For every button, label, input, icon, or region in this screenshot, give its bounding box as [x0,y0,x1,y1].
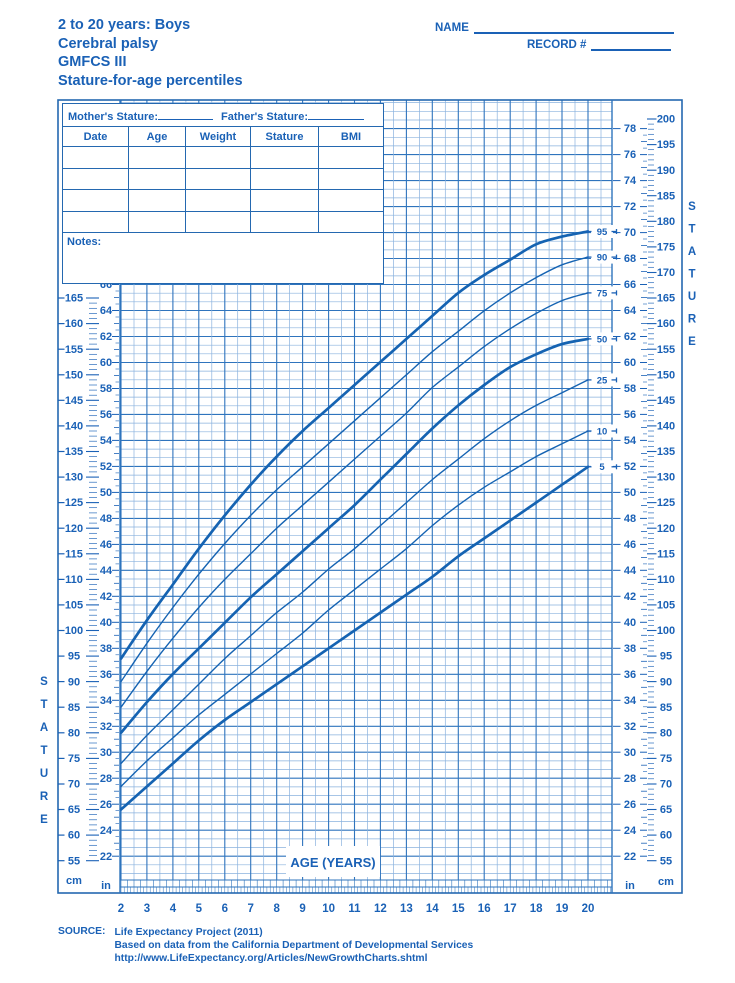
svg-text:90: 90 [597,253,608,264]
svg-text:46: 46 [100,539,112,551]
svg-text:120: 120 [657,523,675,535]
svg-text:75: 75 [597,288,608,299]
mother-stature-label: Mother's Stature: [68,111,158,123]
svg-text:4: 4 [170,903,177,915]
svg-text:140: 140 [657,421,675,433]
subtitle-gmfcs-level: GMFCS III [58,53,243,72]
svg-text:8: 8 [273,903,280,915]
svg-text:55: 55 [68,855,80,867]
record-field: RECORD # [527,37,671,51]
entry-cell[interactable] [319,190,384,212]
svg-text:56: 56 [100,409,112,421]
svg-text:32: 32 [100,721,112,733]
svg-text:36: 36 [100,669,112,681]
svg-text:62: 62 [100,331,112,343]
svg-text:28: 28 [624,773,636,785]
svg-text:175: 175 [657,242,675,254]
svg-text:34: 34 [100,695,113,707]
svg-text:28: 28 [100,773,112,785]
svg-text:2: 2 [118,903,124,915]
svg-text:145: 145 [657,395,675,407]
svg-text:36: 36 [624,669,636,681]
svg-text:U: U [40,768,48,780]
svg-text:105: 105 [657,600,675,612]
svg-text:135: 135 [657,446,675,458]
svg-text:100: 100 [65,625,83,637]
svg-text:22: 22 [100,851,112,863]
svg-text:64: 64 [624,305,637,317]
entry-cell[interactable] [186,211,251,233]
svg-text:75: 75 [660,753,672,765]
svg-text:72: 72 [624,201,636,213]
svg-text:65: 65 [660,804,672,816]
y-axis-left: 1651601551501451401351301251201151101051… [58,279,119,892]
svg-text:24: 24 [100,825,113,837]
svg-text:115: 115 [657,548,675,560]
svg-text:22: 22 [624,851,636,863]
svg-text:165: 165 [65,293,83,305]
svg-text:130: 130 [657,472,675,484]
svg-text:120: 120 [65,523,83,535]
svg-text:55: 55 [660,855,672,867]
svg-text:85: 85 [660,702,672,714]
svg-text:80: 80 [68,727,80,739]
column-header-weight: Weight [186,127,251,147]
entry-cell[interactable] [63,190,129,212]
svg-text:32: 32 [624,721,636,733]
svg-text:76: 76 [624,149,636,161]
entry-cell[interactable] [63,211,129,233]
column-header-date: Date [63,127,129,147]
notes-label: Notes: [67,236,101,248]
svg-text:20: 20 [582,903,595,915]
svg-text:125: 125 [65,497,83,509]
svg-text:25: 25 [597,375,608,386]
svg-text:16: 16 [478,903,491,915]
svg-text:30: 30 [624,747,636,759]
svg-text:95: 95 [68,651,80,663]
svg-text:cm: cm [658,876,674,888]
svg-text:12: 12 [374,903,387,915]
father-stature-input-line[interactable] [308,110,364,120]
svg-text:14: 14 [426,903,439,915]
svg-text:110: 110 [65,574,83,586]
svg-text:70: 70 [624,227,636,239]
svg-text:200: 200 [657,114,675,126]
subtitle-condition: Cerebral palsy [58,35,243,54]
svg-text:60: 60 [624,357,636,369]
svg-text:15: 15 [452,903,465,915]
svg-text:165: 165 [657,293,675,305]
svg-text:S: S [688,201,696,213]
svg-text:46: 46 [624,539,636,551]
svg-text:195: 195 [657,139,675,151]
svg-text:155: 155 [657,344,675,356]
title-block: 2 to 20 years: Boys Cerebral palsy GMFCS… [58,16,243,90]
entry-cell[interactable] [251,190,319,212]
svg-text:60: 60 [68,830,80,842]
column-header-bmi: BMI [319,127,384,147]
source-label: SOURCE: [58,926,105,965]
svg-text:42: 42 [100,591,112,603]
svg-text:S: S [40,676,48,688]
svg-text:AGE (YEARS): AGE (YEARS) [290,855,375,870]
svg-text:cm: cm [66,875,82,887]
svg-text:17: 17 [504,903,517,915]
svg-text:T: T [40,745,47,757]
svg-text:T: T [688,269,695,281]
svg-text:13: 13 [400,903,413,915]
svg-text:50: 50 [597,334,608,345]
svg-text:38: 38 [624,643,636,655]
entry-cell[interactable] [186,147,251,169]
svg-text:66: 66 [624,279,636,291]
svg-text:7: 7 [247,903,253,915]
page-title: 2 to 20 years: Boys [58,16,243,35]
svg-text:105: 105 [65,600,83,612]
svg-text:70: 70 [660,779,672,791]
growth-chart-page: 1651601551501451401351301251201151101051… [0,0,735,983]
svg-text:44: 44 [100,565,113,577]
column-header-stature: Stature [251,127,319,147]
svg-text:90: 90 [660,676,672,688]
svg-text:44: 44 [624,565,637,577]
svg-text:26: 26 [100,799,112,811]
svg-text:50: 50 [624,487,636,499]
x-axis: 234567891011121314151617181920 [118,903,595,915]
parent-stature-row: Mother's Stature:Father's Stature: [63,104,384,127]
entry-cell[interactable] [319,211,384,233]
svg-text:58: 58 [100,383,112,395]
svg-text:T: T [688,224,695,236]
svg-text:11: 11 [348,903,361,915]
entry-cell[interactable] [129,168,186,190]
name-input-line[interactable] [474,20,674,34]
svg-text:10: 10 [597,426,608,437]
svg-text:9: 9 [299,903,305,915]
svg-text:5: 5 [599,462,605,473]
y-axis-right: 7876747270686664626058565452504846444240… [613,114,675,892]
entry-table-header-row: DateAgeWeightStatureBMI [63,127,384,147]
svg-text:52: 52 [624,461,636,473]
svg-text:190: 190 [657,165,675,177]
svg-text:155: 155 [65,344,83,356]
svg-text:52: 52 [100,461,112,473]
svg-text:10: 10 [322,903,335,915]
source-line-2: Based on data from the California Depart… [114,939,473,952]
svg-text:30: 30 [100,747,112,759]
svg-text:48: 48 [624,513,636,525]
source-url: http://www.LifeExpectancy.org/Articles/N… [114,952,473,965]
entry-table-row [63,168,384,190]
svg-text:40: 40 [624,617,636,629]
entry-cell[interactable] [319,168,384,190]
source-block: SOURCE: Life Expectancy Project (2011) B… [58,926,473,965]
entry-cell[interactable] [63,168,129,190]
entry-cell[interactable] [251,211,319,233]
svg-text:60: 60 [660,830,672,842]
svg-text:185: 185 [657,190,675,202]
svg-text:in: in [101,880,111,892]
entry-cell[interactable] [129,190,186,212]
svg-text:115: 115 [65,548,83,560]
notes-area[interactable]: Notes: [63,233,384,284]
svg-text:110: 110 [657,574,675,586]
svg-text:62: 62 [624,331,636,343]
source-line-1: Life Expectancy Project (2011) [114,926,473,939]
svg-text:70: 70 [68,779,80,791]
svg-text:in: in [625,880,635,892]
column-header-age: Age [129,127,186,147]
data-entry-table: Mother's Stature:Father's Stature: DateA… [62,103,384,284]
entry-cell[interactable] [186,190,251,212]
subtitle-measure: Stature-for-age percentiles [58,72,243,91]
svg-text:85: 85 [68,702,80,714]
svg-text:56: 56 [624,409,636,421]
svg-text:24: 24 [624,825,637,837]
record-input-line[interactable] [591,37,671,51]
entry-table-row [63,147,384,169]
entry-table-row [63,211,384,233]
entry-cell[interactable] [319,147,384,169]
svg-text:54: 54 [100,435,113,447]
svg-text:19: 19 [556,903,569,915]
entry-table-row [63,190,384,212]
svg-text:95: 95 [597,227,608,238]
svg-text:150: 150 [65,369,83,381]
svg-text:95: 95 [660,651,672,663]
name-field: NAME [435,20,674,34]
svg-text:100: 100 [657,625,675,637]
svg-text:U: U [688,291,696,303]
name-label: NAME [435,22,469,34]
father-stature-label: Father's Stature: [221,111,308,123]
svg-text:150: 150 [657,369,675,381]
svg-text:42: 42 [624,591,636,603]
svg-text:18: 18 [530,903,543,915]
svg-text:60: 60 [100,357,112,369]
svg-text:68: 68 [624,253,636,265]
svg-text:40: 40 [100,617,112,629]
record-label: RECORD # [527,39,586,51]
svg-text:58: 58 [624,383,636,395]
svg-text:R: R [40,791,49,803]
svg-text:5: 5 [196,903,203,915]
entry-cell[interactable] [129,211,186,233]
svg-text:145: 145 [65,395,83,407]
svg-text:26: 26 [624,799,636,811]
svg-text:A: A [40,722,48,734]
svg-text:90: 90 [68,676,80,688]
svg-text:140: 140 [65,421,83,433]
svg-text:75: 75 [68,753,80,765]
svg-text:34: 34 [624,695,637,707]
mother-stature-input-line[interactable] [158,110,213,120]
entry-cell[interactable] [129,147,186,169]
entry-cell[interactable] [63,147,129,169]
entry-cell[interactable] [251,168,319,190]
svg-text:130: 130 [65,472,83,484]
stature-axis-title-left: STATURE [40,676,49,826]
age-axis-title: AGE (YEARS) [286,846,380,877]
entry-cell[interactable] [251,147,319,169]
svg-text:65: 65 [68,804,80,816]
svg-text:T: T [40,699,47,711]
svg-text:E: E [40,814,48,826]
svg-text:R: R [688,314,697,326]
svg-text:125: 125 [657,497,675,509]
entry-cell[interactable] [186,168,251,190]
svg-text:6: 6 [222,903,228,915]
svg-text:78: 78 [624,123,636,135]
svg-text:80: 80 [660,727,672,739]
svg-text:54: 54 [624,435,637,447]
svg-text:A: A [688,246,696,258]
svg-text:50: 50 [100,487,112,499]
svg-text:160: 160 [657,318,675,330]
svg-text:180: 180 [657,216,675,228]
svg-text:74: 74 [624,175,637,187]
svg-text:170: 170 [657,267,675,279]
svg-text:135: 135 [65,446,83,458]
svg-text:160: 160 [65,318,83,330]
stature-axis-title-right: STATURE [688,201,697,348]
svg-text:E: E [688,336,696,348]
svg-text:38: 38 [100,643,112,655]
svg-text:64: 64 [100,305,113,317]
svg-text:3: 3 [144,903,150,915]
svg-text:48: 48 [100,513,112,525]
